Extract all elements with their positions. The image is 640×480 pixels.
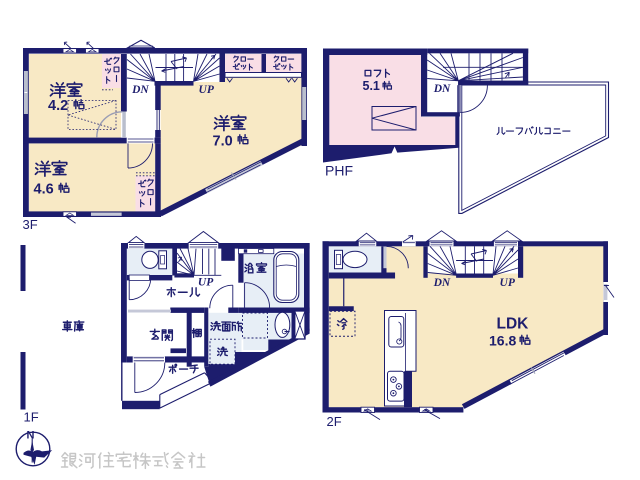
svg-text:4.6: 4.6 <box>34 182 54 198</box>
svg-text:LDK: LDK <box>497 316 530 333</box>
svg-text:DN: DN <box>433 83 451 95</box>
svg-text:N: N <box>27 430 35 442</box>
svg-text:2F: 2F <box>327 414 342 429</box>
svg-text:UP: UP <box>199 84 215 96</box>
svg-text:UP: UP <box>198 276 214 288</box>
svg-text:4.2: 4.2 <box>48 98 68 114</box>
svg-text:16.8: 16.8 <box>489 333 516 349</box>
svg-text:DN: DN <box>131 84 149 96</box>
svg-text:PHF: PHF <box>325 163 353 179</box>
svg-text:5.1: 5.1 <box>363 79 380 93</box>
svg-text:3F: 3F <box>23 217 38 232</box>
svg-text:1F: 1F <box>24 410 39 425</box>
svg-text:UP: UP <box>500 277 516 289</box>
svg-text:DN: DN <box>433 277 451 289</box>
svg-text:7.0: 7.0 <box>213 134 233 150</box>
